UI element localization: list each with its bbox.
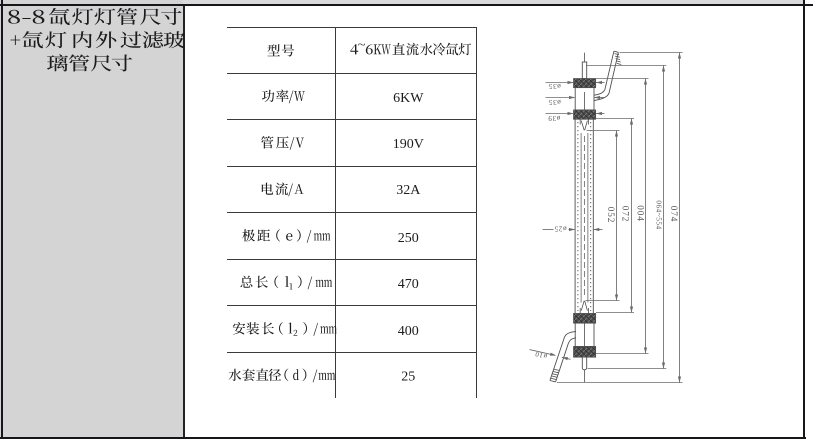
svg-text:ø35: ø35 — [548, 98, 561, 106]
svg-text:190V: 190V — [393, 137, 424, 152]
svg-text:ø35: ø35 — [548, 82, 561, 90]
svg-text:064~554: 064~554 — [654, 200, 663, 229]
svg-text:400: 400 — [398, 324, 419, 339]
svg-text:6KW: 6KW — [393, 91, 424, 106]
svg-text:470: 470 — [398, 277, 419, 292]
svg-text:ø10: ø10 — [534, 350, 548, 361]
svg-text:ø39: ø39 — [548, 114, 561, 122]
svg-text:052: 052 — [606, 207, 616, 223]
svg-text:ø25: ø25 — [554, 224, 567, 232]
svg-text:32A: 32A — [396, 183, 421, 198]
svg-text:072: 072 — [621, 206, 631, 222]
svg-text:25: 25 — [401, 370, 415, 385]
svg-text:074: 074 — [669, 206, 679, 222]
svg-text:004: 004 — [636, 205, 646, 221]
svg-text:250: 250 — [398, 231, 419, 246]
